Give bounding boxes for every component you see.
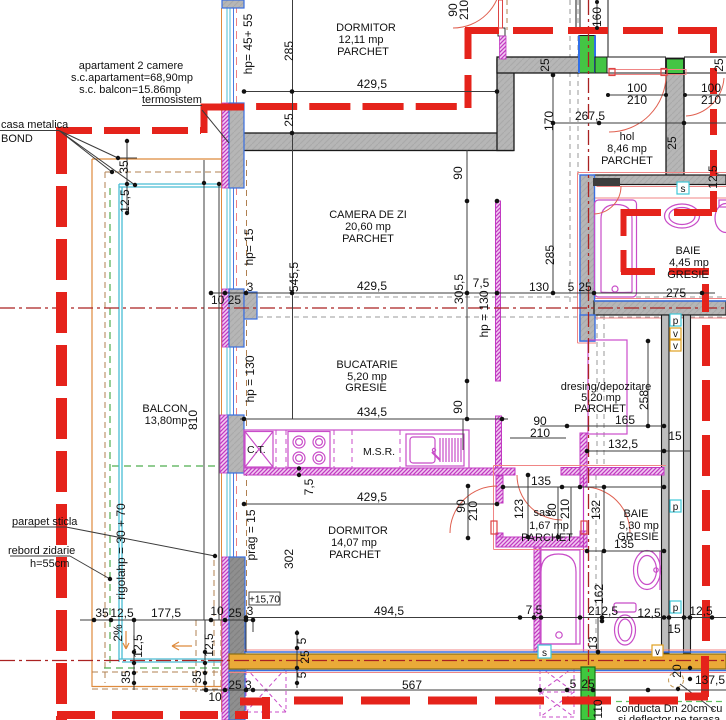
svg-text:BAIE: BAIE [623,508,648,520]
svg-text:hol: hol [620,131,635,143]
svg-text:35: 35 [119,670,133,684]
svg-text:12,5: 12,5 [706,165,720,189]
svg-text:305,5: 305,5 [452,274,466,304]
svg-text:hp = 130: hp = 130 [477,290,491,337]
svg-text:90: 90 [451,166,465,180]
svg-text:5: 5 [568,280,575,294]
svg-text:267,5: 267,5 [575,109,605,123]
svg-text:25: 25 [228,606,242,620]
svg-text:170: 170 [542,111,556,131]
svg-text:429,5: 429,5 [357,490,387,504]
svg-text:GRESIE: GRESIE [667,269,709,281]
svg-text:90: 90 [451,400,465,414]
svg-text:hp = 30 + 70: hp = 30 + 70 [114,503,128,571]
svg-text:4,45 mp: 4,45 mp [669,257,709,269]
svg-text:110: 110 [591,699,605,718]
svg-text:434,5: 434,5 [357,405,387,419]
svg-text:165: 165 [615,413,635,427]
svg-text:210: 210 [457,0,471,20]
svg-text:137,5: 137,5 [695,673,725,687]
svg-text:210: 210 [466,501,480,521]
svg-text:177,5: 177,5 [151,606,181,620]
svg-text:429,5: 429,5 [357,77,387,91]
svg-text:210: 210 [627,93,647,107]
svg-text:CAMERA DE ZI: CAMERA DE ZI [329,209,407,221]
svg-text:apartament 2 camere: apartament 2 camere [79,60,184,72]
svg-text:5: 5 [295,671,309,678]
svg-text:12,5: 12,5 [202,633,216,657]
svg-text:5: 5 [570,677,577,691]
svg-text:BOND: BOND [1,133,33,145]
svg-text:3: 3 [247,280,254,294]
svg-text:hp= 15: hp= 15 [242,228,256,265]
svg-text:5: 5 [295,637,309,644]
svg-text:p: p [673,603,679,614]
svg-text:35: 35 [117,160,131,174]
svg-text:BAIE: BAIE [675,245,700,257]
svg-text:PARCHET: PARCHET [329,549,381,561]
svg-text:8,46 mp: 8,46 mp [607,143,647,155]
svg-text:25: 25 [282,113,296,127]
svg-text:v: v [655,647,660,658]
svg-text:12,5: 12,5 [689,604,713,618]
svg-text:PARCHET: PARCHET [342,233,394,245]
svg-text:20,60 mp: 20,60 mp [345,221,391,233]
svg-text:285: 285 [543,245,557,265]
svg-text:PARCHET: PARCHET [521,532,573,544]
svg-text:12,5: 12,5 [637,606,661,620]
svg-text:810: 810 [186,410,200,430]
svg-text:132: 132 [589,500,603,520]
svg-text:10 25: 10 25 [211,293,241,307]
svg-text:12,5: 12,5 [131,634,145,658]
svg-text:20: 20 [670,664,684,678]
svg-text:v: v [673,329,678,340]
svg-text:10: 10 [208,690,222,704]
svg-text:7,5: 7,5 [302,478,316,495]
svg-text:+15,70: +15,70 [249,595,280,606]
svg-text:285: 285 [282,41,296,61]
svg-text:parapet sticla: parapet sticla [12,516,78,528]
svg-text:12,5: 12,5 [110,606,134,620]
svg-text:132,5: 132,5 [608,437,638,451]
svg-text:3: 3 [247,604,254,618]
svg-text:BALCON: BALCON [142,403,187,415]
svg-text:25: 25 [298,650,312,664]
svg-text:s: s [681,184,686,195]
svg-text:DORMITOR: DORMITOR [328,525,388,537]
svg-text:s: s [542,648,547,659]
svg-text:12,11 mp: 12,11 mp [338,34,383,46]
svg-text:DORMITOR: DORMITOR [336,22,396,34]
svg-text:v: v [673,341,678,352]
svg-text:GRESIE: GRESIE [345,382,387,394]
svg-text:M.S.R.: M.S.R. [363,446,395,458]
svg-text:162: 162 [592,584,606,604]
svg-text:210: 210 [558,499,572,519]
svg-text:25: 25 [578,280,592,294]
svg-text:7,5: 7,5 [473,276,490,290]
svg-text:210: 210 [530,426,550,440]
svg-text:35: 35 [190,670,204,684]
svg-text:s.c.apartament=68,90mp: s.c.apartament=68,90mp [71,72,193,84]
svg-text:p: p [673,316,679,327]
svg-text:258: 258 [637,390,651,410]
svg-text:212,5: 212,5 [588,604,618,618]
svg-text:25: 25 [712,58,726,72]
svg-text:12,5: 12,5 [118,189,132,213]
svg-text:275: 275 [666,286,686,300]
svg-text:hp = 130: hp = 130 [243,355,257,402]
svg-text:160: 160 [590,7,604,27]
svg-text:35: 35 [95,606,109,620]
svg-text:si deflector pe terasa: si deflector pe terasa [618,714,721,720]
svg-text:rigola: rigola [114,570,128,600]
svg-text:494,5: 494,5 [374,604,404,618]
svg-text:545,5: 545,5 [287,262,301,292]
svg-text:567: 567 [402,678,422,692]
svg-text:210: 210 [701,93,721,107]
svg-text:15: 15 [667,622,681,636]
svg-text:p: p [673,502,679,513]
svg-text:13: 13 [586,636,600,650]
svg-text:25: 25 [581,677,595,691]
svg-text:25: 25 [538,58,552,72]
svg-text:1,67 mp: 1,67 mp [529,520,569,532]
svg-text:130: 130 [529,280,549,294]
svg-text:14,07 mp: 14,07 mp [331,537,377,549]
svg-text:hp= 45+ 55: hp= 45+ 55 [241,13,255,74]
svg-text:casa metalica: casa metalica [1,119,69,131]
svg-text:h=55cm: h=55cm [30,558,69,570]
svg-text:prag = 15: prag = 15 [244,509,258,560]
svg-text:80: 80 [545,503,559,517]
svg-text:PARCHET: PARCHET [601,155,653,167]
svg-text:PARCHET: PARCHET [337,46,389,58]
svg-text:25: 25 [665,136,679,150]
svg-text:2%: 2% [111,624,125,642]
svg-text:7,5: 7,5 [526,603,543,617]
svg-text:rebord zidarie: rebord zidarie [8,545,75,557]
svg-text:15: 15 [668,429,682,443]
svg-text:135: 135 [614,537,634,551]
svg-text:C.T.: C.T. [247,444,266,456]
svg-text:10: 10 [210,604,224,618]
svg-text:13,80mp: 13,80mp [145,415,188,427]
svg-text:25 3: 25 3 [228,678,252,692]
svg-text:123: 123 [512,499,526,519]
svg-text:135: 135 [531,474,551,488]
svg-text:termosistem: termosistem [142,94,202,106]
svg-text:302: 302 [282,549,296,569]
svg-text:429,5: 429,5 [357,279,387,293]
svg-text:BUCATARIE: BUCATARIE [336,359,397,371]
